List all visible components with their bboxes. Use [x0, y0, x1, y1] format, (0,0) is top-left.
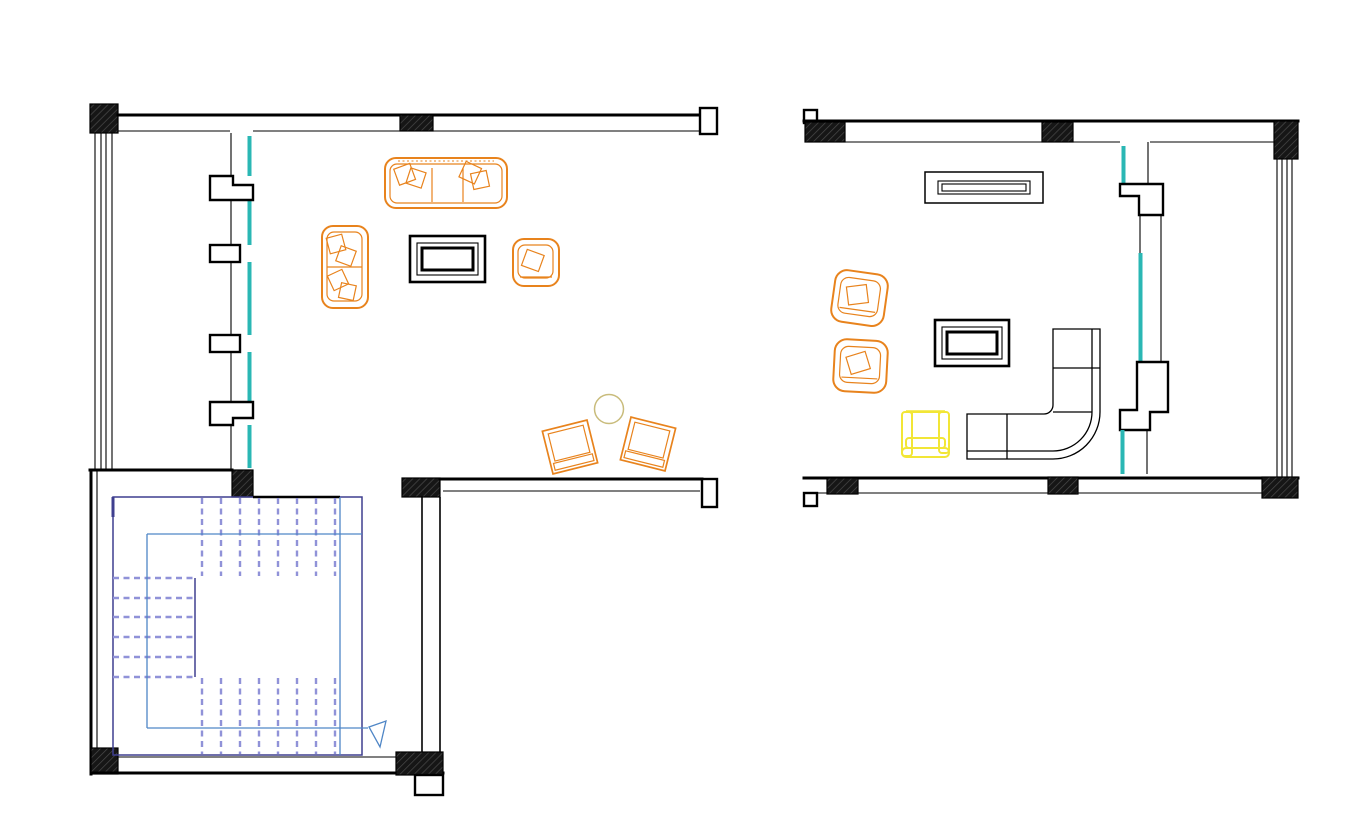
column-hatch-sw: [91, 748, 118, 774]
pillow: [394, 163, 416, 185]
round-side-table: [595, 395, 624, 424]
pillow: [327, 269, 348, 290]
mullion-block-l: [210, 402, 253, 425]
column-hatch-nw: [90, 104, 118, 133]
yellow-armchair: [902, 411, 949, 457]
stair-outline: [113, 497, 362, 755]
mullion-block-l: [210, 176, 253, 200]
coffee-table-upper: [935, 320, 1009, 366]
drawing-sheet: [0, 0, 1361, 828]
pillow: [406, 168, 426, 188]
column-hatch-se: [1262, 477, 1298, 498]
cushion: [846, 285, 868, 305]
window-wall-west-glazing: [210, 133, 253, 497]
column-hatch-mid: [402, 478, 440, 497]
column-hatch-ne: [1274, 121, 1298, 159]
south-wall-hatch-mid: [1048, 477, 1078, 494]
stair-u-shaped: [113, 497, 386, 755]
cushion: [846, 351, 870, 374]
south-wing-wall: [440, 479, 717, 507]
cushion: [521, 249, 544, 271]
north-wall-end-cap: [700, 108, 717, 134]
stair-room-walls: [90, 470, 443, 795]
north-wall-hatch-block: [400, 115, 433, 131]
pillow: [471, 171, 490, 190]
south-wall-hatch-w: [827, 478, 858, 494]
l-shaped-corner-sofa: [967, 329, 1100, 459]
pier-block-south: [415, 775, 443, 795]
armchair-upper: [830, 269, 890, 328]
coffee-table: [410, 236, 485, 282]
lower-furniture: [322, 158, 676, 474]
three-seat-sofa: [385, 158, 507, 208]
upper-furniture: [830, 172, 1100, 459]
north-wall-hatch-w: [805, 122, 845, 142]
angled-chair-left: [542, 420, 597, 474]
pillow: [326, 234, 346, 254]
south-wall: [804, 477, 1298, 506]
wall-jog-block-upper: [1120, 184, 1163, 215]
stair-direction-arrow: [369, 721, 386, 747]
two-seat-loveseat: [322, 226, 368, 308]
curtain-wall-west: [95, 133, 112, 469]
north-wall-hatch-mid: [1042, 122, 1073, 142]
curtain-wall-east: [1277, 159, 1292, 477]
floor-plan-canvas: [0, 0, 1361, 828]
window-wall-east-glazing: [1120, 142, 1168, 474]
mullion-block: [210, 245, 240, 262]
angled-chair-right: [620, 417, 675, 471]
mullion-hatch-block: [232, 470, 253, 497]
floor-plan-lower-level: [90, 104, 717, 795]
mullion-block: [210, 335, 240, 352]
armchair: [513, 239, 559, 286]
stair-flight-left-treads: [113, 578, 195, 677]
south-wall-end-cap: [702, 479, 717, 507]
wall-jog-block-lower: [1120, 362, 1168, 430]
floor-plan-upper-level: [804, 110, 1298, 506]
south-wall-tab-sw: [804, 493, 817, 506]
stair-flight-top-treads: [202, 498, 335, 576]
column-hatch-se: [396, 752, 443, 775]
stair-flight-bottom-treads: [202, 678, 335, 754]
stair-walkline: [147, 497, 386, 755]
armchair-lower: [833, 339, 889, 394]
pillow: [338, 283, 356, 301]
media-console: [925, 172, 1043, 203]
